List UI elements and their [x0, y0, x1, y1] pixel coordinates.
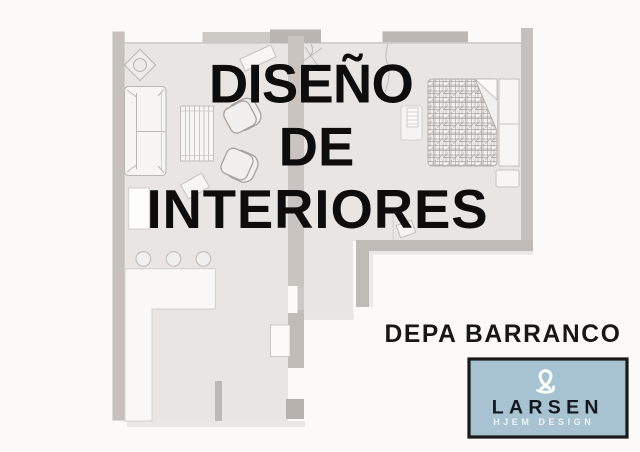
- svg-text:DISEÑO: DISEÑO: [209, 54, 413, 115]
- svg-text:DEPA BARRANCO: DEPA BARRANCO: [385, 321, 622, 348]
- svg-text:HJEM DESIGN: HJEM DESIGN: [493, 417, 594, 427]
- svg-text:DE: DE: [279, 117, 355, 178]
- svg-text:LARSEN: LARSEN: [492, 396, 604, 418]
- svg-text:INTERIORES: INTERIORES: [146, 179, 488, 240]
